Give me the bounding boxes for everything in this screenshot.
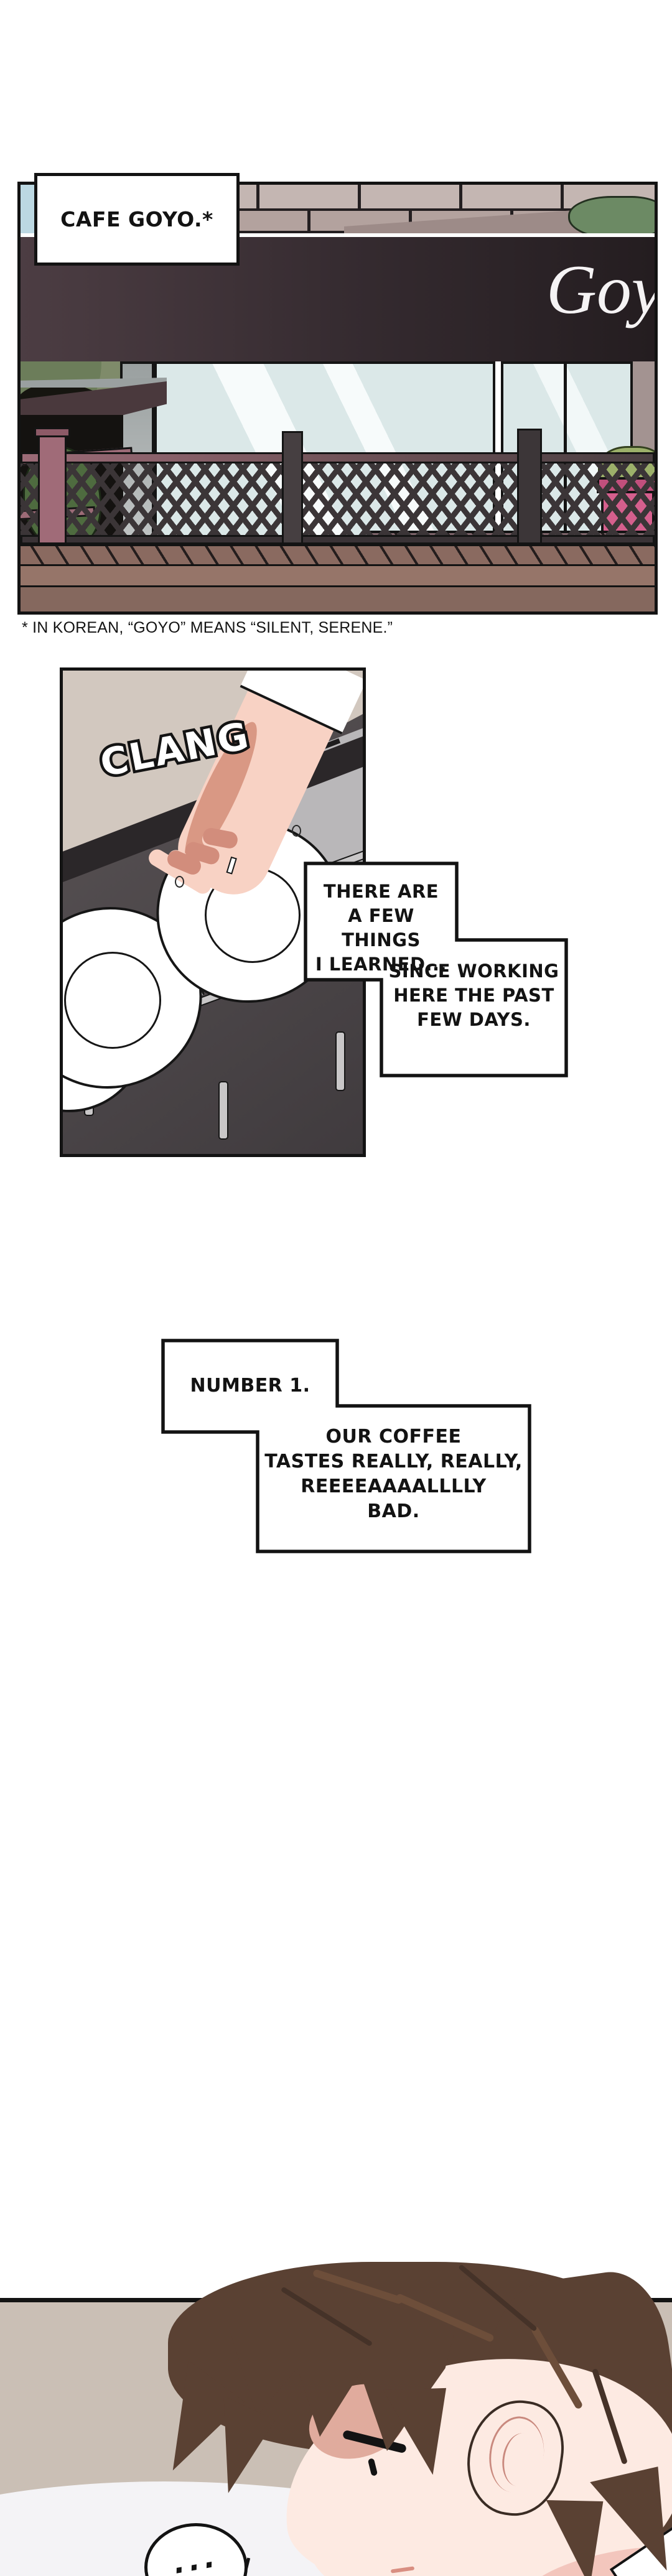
deck-fascia (21, 585, 655, 613)
plate-inner-ring (64, 952, 161, 1049)
deck-boards (21, 544, 655, 566)
caption-box-cafe: CAFE GOYO.* (34, 173, 240, 266)
webtoon-page: Goyo CAFE GOYO.* * IN KOREAN, “GOYO” MEA… (0, 0, 672, 2576)
fence-bottom-rail (21, 535, 655, 544)
caption-cafe-text: CAFE GOYO.* (60, 207, 213, 231)
caption-coffee-text: OUR COFFEE TASTES REALLY, REALLY, REEEEA… (258, 1425, 530, 1524)
fence-post (282, 431, 303, 544)
deck-fascia (21, 564, 655, 587)
caption-number-text: NUMBER 1. (163, 1374, 337, 1398)
fence-post-pink (38, 432, 67, 544)
rack-leg (218, 1081, 228, 1140)
fence-post-cap (34, 427, 70, 437)
water-drop (175, 876, 184, 888)
fence-top-rail (21, 452, 655, 463)
sfx-clang-text: CLANG (97, 714, 254, 786)
bubble-since-text: SINCE WORKING HERE THE PAST FEW DAYS. (381, 959, 566, 1032)
lattice-fence (21, 463, 655, 544)
fence-post (517, 429, 542, 544)
water-drop (292, 825, 301, 837)
storefront-sign-text: Goyo (546, 248, 658, 332)
footnote-text: * IN KOREAN, “GOYO” MEANS “SILENT, SEREN… (22, 619, 457, 637)
